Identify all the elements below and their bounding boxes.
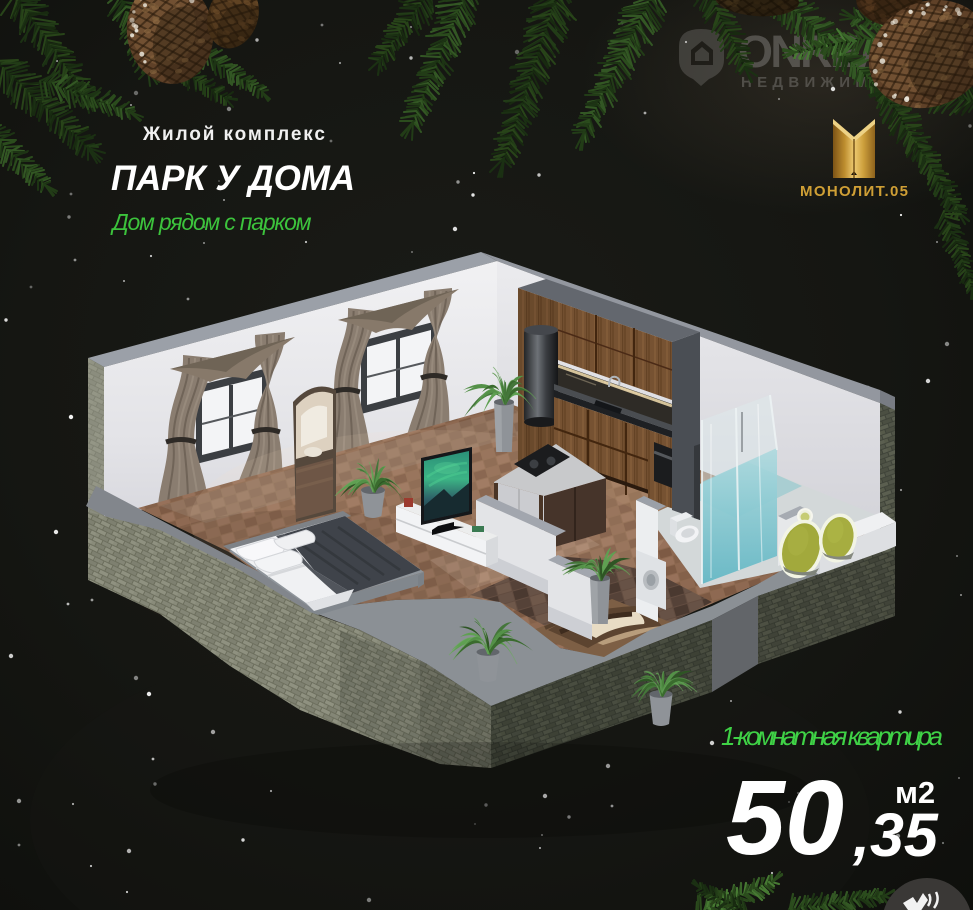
svg-text:Дом рядом с парком: Дом рядом с парком	[110, 209, 312, 235]
svg-text:м2: м2	[895, 775, 935, 810]
svg-text:1-комнатная квартира: 1-комнатная квартира	[721, 721, 943, 751]
svg-text:Жилой комплекс: Жилой комплекс	[142, 124, 327, 145]
svg-text:50: 50	[726, 759, 844, 877]
svg-text:ПАРК У ДОМА: ПАРК У ДОМА	[111, 159, 355, 198]
svg-text:,35: ,35	[852, 801, 939, 869]
svg-text:МОНОЛИТ.05: МОНОЛИТ.05	[800, 183, 908, 200]
